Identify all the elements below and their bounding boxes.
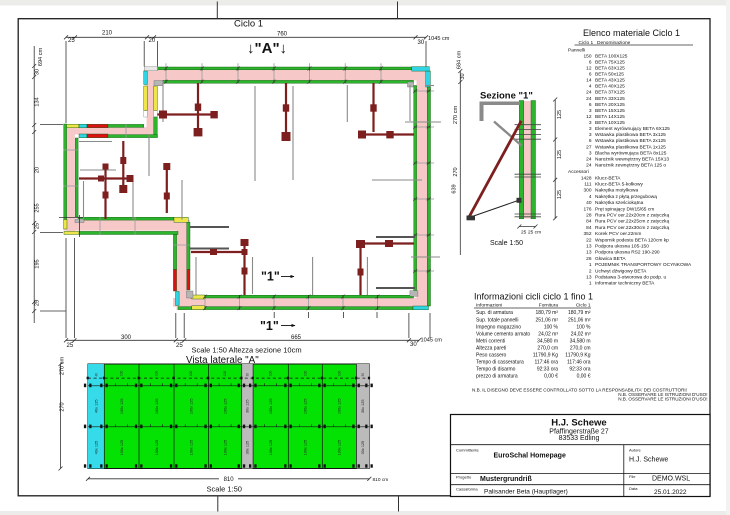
svg-text:Sup. di armatura: Sup. di armatura — [476, 310, 513, 316]
svg-text:100: 100 — [189, 370, 193, 376]
svg-text:352: 352 — [583, 231, 591, 237]
svg-text:Blacha wyrównująca BETA 8x125: Blacha wyrównująca BETA 8x125 — [595, 150, 667, 156]
svg-text:H.J. Schewe: H.J. Schewe — [551, 418, 606, 429]
svg-text:195: 195 — [35, 259, 41, 268]
svg-text:100x 125: 100x 125 — [190, 440, 194, 456]
svg-text:Podstawa 3-otworowa do podp. u: Podstawa 3-otworowa do podp. u — [595, 275, 667, 281]
svg-text:Scale 1:50: Scale 1:50 — [490, 240, 523, 247]
svg-text:180,79 m²: 180,79 m² — [535, 310, 558, 316]
svg-text:117:46 ora: 117:46 ora — [534, 360, 558, 366]
svg-text:Scale 1:50: Scale 1:50 — [207, 484, 242, 493]
svg-text:125: 125 — [557, 150, 563, 159]
svg-text:Podpora ukosna RS2 190-290: Podpora ukosna RS2 190-290 — [595, 250, 660, 256]
svg-text:6: 6 — [589, 138, 592, 144]
svg-text:180,79 m²: 180,79 m² — [568, 310, 591, 316]
svg-text:Głowica BETA: Głowica BETA — [595, 256, 626, 262]
svg-text:92:33 ora: 92:33 ora — [537, 367, 558, 373]
svg-text:125: 125 — [557, 110, 563, 119]
svg-text:Palisander Beta (Hauptlager): Palisander Beta (Hauptlager) — [484, 488, 568, 495]
svg-text:40: 40 — [586, 200, 592, 206]
svg-text:3: 3 — [589, 132, 592, 138]
svg-text:H.J. Schewe: H.J. Schewe — [629, 457, 668, 464]
svg-text:1: 1 — [589, 262, 592, 268]
svg-text:Podpora ukosna 105-150: Podpora ukosna 105-150 — [595, 244, 649, 250]
svg-text:639: 639 — [452, 184, 458, 193]
svg-text:Klucz-BETA: Klucz-BETA — [595, 175, 621, 181]
svg-text:270 cm: 270 cm — [60, 356, 66, 375]
svg-text:Rura PCV oer.22x25cm z zatyczk: Rura PCV oer.22x25cm z zatyczką — [595, 219, 669, 225]
svg-text:30: 30 — [418, 40, 425, 46]
svg-text:25: 25 — [35, 300, 41, 306]
svg-text:Rura PCV oer.22x20cm z zatyczk: Rura PCV oer.22x20cm z zatyczką — [595, 213, 669, 219]
svg-text:30x 125: 30x 125 — [361, 400, 365, 414]
svg-text:30: 30 — [35, 69, 41, 75]
svg-text:270,0 cm: 270,0 cm — [570, 346, 591, 352]
svg-text:270,0 cm: 270,0 cm — [537, 346, 558, 352]
svg-text:100x 125: 100x 125 — [269, 440, 273, 456]
svg-text:100: 100 — [269, 370, 273, 376]
svg-text:84: 84 — [586, 225, 592, 231]
svg-text:25: 25 — [67, 343, 74, 349]
svg-text:100 %: 100 % — [576, 324, 591, 330]
svg-text:1045 cm: 1045 cm — [421, 338, 443, 344]
svg-text:24,02 m³: 24,02 m³ — [571, 331, 591, 337]
svg-text:File: File — [629, 474, 636, 479]
svg-text:20: 20 — [149, 38, 156, 44]
svg-text:100x 125: 100x 125 — [269, 398, 273, 414]
svg-text:POJEMNIK TRANSPORTOWY OCYNKOWA: POJEMNIK TRANSPORTOWY OCYNKOWA — [595, 262, 692, 268]
svg-text:Nakrętka z płytą przegubową: Nakrętka z płytą przegubową — [595, 194, 657, 200]
svg-text:30x 125: 30x 125 — [361, 441, 365, 455]
svg-text:100x 125: 100x 125 — [120, 440, 124, 456]
svg-text:40: 40 — [94, 373, 98, 377]
svg-text:40x 125: 40x 125 — [95, 400, 99, 414]
svg-text:25: 25 — [68, 38, 75, 44]
svg-text:Elenco materiale Ciclo 1: Elenco materiale Ciclo 1 — [583, 28, 680, 38]
svg-text:Peso cassero: Peso cassero — [476, 353, 507, 359]
svg-text:100x 125: 100x 125 — [155, 398, 159, 414]
svg-text:Rura PCV oer.22x30cm z zatyczk: Rura PCV oer.22x30cm z zatyczką — [595, 225, 669, 231]
svg-text:Nakrętka motylkowa: Nakrętka motylkowa — [595, 188, 639, 194]
svg-text:13: 13 — [586, 250, 592, 256]
svg-text:255: 255 — [35, 203, 41, 212]
svg-text:84: 84 — [586, 219, 592, 225]
svg-text:12: 12 — [586, 114, 592, 120]
svg-text:BETA 50x125: BETA 50x125 — [595, 72, 624, 78]
svg-text:100x 125: 100x 125 — [223, 398, 227, 414]
svg-text:Tempo di disarmo: Tempo di disarmo — [476, 367, 516, 373]
svg-text:13: 13 — [586, 244, 592, 250]
svg-text:28: 28 — [586, 213, 592, 219]
svg-text:270: 270 — [453, 167, 459, 176]
svg-text:11790,9 Kg: 11790,9 Kg — [533, 353, 558, 359]
svg-text:Uchwyt dźwigowy BETA: Uchwyt dźwigowy BETA — [595, 268, 647, 274]
svg-text:100x 125: 100x 125 — [190, 398, 194, 414]
svg-text:25 cm: 25 cm — [528, 230, 541, 236]
svg-text:Nakrętka sześciokątna: Nakrętka sześciokątna — [595, 200, 644, 206]
svg-text:100: 100 — [337, 370, 341, 376]
svg-text:BETA 10X125: BETA 10X125 — [595, 120, 625, 126]
svg-text:BETA 40X125: BETA 40X125 — [595, 84, 625, 90]
svg-text:Impegno magazzino: Impegno magazzino — [476, 324, 521, 330]
svg-text:270: 270 — [60, 402, 66, 411]
svg-text:12: 12 — [586, 65, 592, 71]
svg-text:6: 6 — [589, 102, 592, 108]
svg-text:↓"A"↓: ↓"A"↓ — [247, 40, 287, 57]
svg-text:40x 125: 40x 125 — [95, 441, 99, 455]
svg-text:BETA 20X125: BETA 20X125 — [595, 102, 625, 108]
svg-text:Klucz-BETA 5-kołkowy: Klucz-BETA 5-kołkowy — [595, 182, 643, 188]
svg-text:30x 125: 30x 125 — [246, 441, 250, 455]
svg-text:Wstawka plastikowa BETA 2x125: Wstawka plastikowa BETA 2x125 — [595, 138, 666, 144]
svg-text:Pręt spinający DW15/65 cm: Pręt spinający DW15/65 cm — [595, 206, 654, 212]
svg-text:Autore: Autore — [629, 448, 642, 453]
svg-text:30: 30 — [460, 73, 466, 79]
svg-text:Cassaforma: Cassaforma — [456, 486, 478, 491]
svg-text:Mustergrundriß: Mustergrundriß — [480, 476, 532, 483]
svg-text:111: 111 — [584, 182, 592, 188]
svg-text:3: 3 — [589, 126, 592, 132]
svg-text:Data: Data — [629, 486, 638, 491]
svg-text:Sezione "1": Sezione "1" — [480, 90, 533, 101]
svg-text:694 cm: 694 cm — [38, 47, 44, 66]
svg-text:4: 4 — [589, 194, 592, 200]
svg-text:134: 134 — [35, 97, 41, 106]
svg-text:EuroSchal Homepage: EuroSchal Homepage — [494, 452, 566, 459]
svg-text:270 cm: 270 cm — [453, 105, 459, 124]
svg-text:N.B. OSSERVARE LE ISTRUZIONI D: N.B. OSSERVARE LE ISTRUZIONI D'USO! — [618, 397, 707, 402]
svg-text:Sup. totale pannelli: Sup. totale pannelli — [476, 317, 519, 323]
svg-text:Scale 1:50 Altezza sezione 10: Scale 1:50 Altezza sezione 10cm — [192, 346, 302, 355]
svg-text:27: 27 — [586, 144, 592, 150]
svg-text:Ciclo 1: Ciclo 1 — [234, 19, 263, 30]
svg-text:BETA 43X125: BETA 43X125 — [595, 78, 625, 84]
svg-text:22: 22 — [586, 237, 592, 243]
svg-text:Accessori: Accessori — [568, 169, 589, 175]
svg-text:Tempo di casseratura: Tempo di casseratura — [476, 360, 524, 366]
svg-text:210: 210 — [102, 31, 113, 37]
svg-text:24,02 m³: 24,02 m³ — [538, 331, 558, 337]
svg-text:Wstawka plastikowa BETA 1x125: Wstawka plastikowa BETA 1x125 — [595, 144, 666, 150]
svg-text:100x 125: 100x 125 — [223, 440, 227, 456]
svg-text:176: 176 — [583, 206, 591, 212]
svg-text:810 cm: 810 cm — [373, 477, 389, 483]
svg-text:30: 30 — [361, 373, 365, 377]
svg-text:24: 24 — [586, 156, 592, 162]
svg-text:prezzo di armatura: prezzo di armatura — [476, 374, 518, 380]
svg-text:11790,9 Kg: 11790,9 Kg — [565, 353, 590, 359]
svg-text:BETA 100X125: BETA 100X125 — [595, 53, 628, 59]
svg-text:100x 125: 100x 125 — [304, 398, 308, 414]
svg-text:24: 24 — [586, 96, 592, 102]
svg-text:2: 2 — [589, 268, 592, 274]
svg-text:92:33 ora: 92:33 ora — [569, 367, 590, 373]
svg-text:100: 100 — [120, 370, 124, 376]
svg-text:30: 30 — [246, 373, 250, 377]
svg-text:BETA 33X125: BETA 33X125 — [595, 96, 625, 102]
svg-text:1: 1 — [589, 281, 592, 287]
svg-text:1428: 1428 — [581, 175, 592, 181]
svg-text:25.01.2022: 25.01.2022 — [654, 489, 687, 496]
svg-text:100x 125: 100x 125 — [120, 398, 124, 414]
svg-text:Committente: Committente — [456, 448, 479, 453]
svg-text:100 %: 100 % — [544, 324, 559, 330]
svg-text:1045 cm: 1045 cm — [428, 36, 450, 42]
svg-text:100: 100 — [303, 370, 307, 376]
svg-text:Narożnik wewnętrzny BETA 15X13: Narożnik wewnętrzny BETA 15X13 — [595, 156, 669, 162]
svg-text:BETA 75X125: BETA 75X125 — [595, 59, 625, 65]
svg-text:Metri correnti: Metri correnti — [476, 338, 505, 344]
svg-text:665: 665 — [291, 335, 302, 341]
svg-text:6: 6 — [589, 59, 592, 65]
svg-text:3: 3 — [589, 108, 592, 114]
svg-text:26: 26 — [586, 256, 592, 262]
svg-text:BETA 63X125: BETA 63X125 — [595, 65, 625, 71]
svg-text:"1": "1" — [260, 319, 279, 333]
svg-text:0,00 €: 0,00 € — [544, 374, 558, 380]
svg-text:BETA 37X125: BETA 37X125 — [595, 90, 625, 96]
svg-text:251,06 m²: 251,06 m² — [568, 317, 591, 323]
svg-text:760: 760 — [277, 32, 288, 38]
svg-text:0,00 €: 0,00 € — [577, 374, 591, 380]
svg-text:Wstawka plastikowa BETA 3x125: Wstawka plastikowa BETA 3x125 — [595, 132, 666, 138]
svg-text:100x 125: 100x 125 — [155, 440, 159, 456]
svg-text:BETA 14X125: BETA 14X125 — [595, 114, 625, 120]
svg-text:3: 3 — [589, 150, 592, 156]
svg-text:300: 300 — [583, 188, 591, 194]
svg-text:24: 24 — [586, 90, 592, 96]
svg-text:Volume cemento armato: Volume cemento armato — [476, 331, 530, 337]
svg-text:Element wyrównujący BETA 6X125: Element wyrównujący BETA 6X125 — [595, 126, 670, 132]
svg-text:4: 4 — [589, 84, 592, 90]
svg-text:125: 125 — [557, 190, 563, 199]
svg-text:24: 24 — [586, 163, 592, 169]
svg-text:"1": "1" — [261, 270, 280, 284]
svg-text:100x 125: 100x 125 — [304, 440, 308, 456]
svg-text:100: 100 — [223, 370, 227, 376]
svg-text:20: 20 — [35, 167, 41, 173]
svg-text:83533 Edling: 83533 Edling — [559, 435, 600, 442]
svg-text:25: 25 — [521, 230, 527, 236]
svg-text:Informator techniczny BETA: Informator techniczny BETA — [595, 281, 655, 287]
svg-text:Wspornik podestu BETA 120cm kp: Wspornik podestu BETA 120cm kp — [595, 237, 669, 243]
svg-text:25: 25 — [35, 223, 41, 229]
svg-text:25: 25 — [176, 343, 183, 349]
svg-text:Altezza pareti: Altezza pareti — [476, 346, 506, 352]
svg-text:BETA 15X125: BETA 15X125 — [595, 108, 625, 114]
svg-text:100x 125: 100x 125 — [338, 440, 342, 456]
svg-text:34,580 m: 34,580 m — [537, 338, 558, 344]
svg-text:30x 125: 30x 125 — [246, 400, 250, 414]
svg-text:13: 13 — [586, 275, 592, 281]
svg-text:Progetto: Progetto — [456, 475, 472, 480]
svg-text:34,580 m: 34,580 m — [570, 338, 591, 344]
svg-text:Pannelli: Pannelli — [568, 48, 585, 54]
svg-text:251,06 m²: 251,06 m² — [535, 317, 558, 323]
svg-text:100: 100 — [155, 370, 159, 376]
svg-text:684 cm: 684 cm — [457, 50, 463, 69]
svg-text:300: 300 — [121, 335, 132, 341]
svg-text:117:46 ora: 117:46 ora — [567, 360, 591, 366]
svg-text:Korek PCV oer.22mm: Korek PCV oer.22mm — [595, 231, 641, 237]
svg-text:100x 125: 100x 125 — [338, 398, 342, 414]
svg-text:6: 6 — [589, 72, 592, 78]
svg-text:810: 810 — [224, 477, 235, 483]
svg-text:3: 3 — [589, 120, 592, 126]
svg-text:150: 150 — [583, 53, 591, 59]
svg-text:DEMO.WSL: DEMO.WSL — [652, 475, 690, 482]
svg-text:Narożnik zewnętrzny BETA 125 o: Narożnik zewnętrzny BETA 125 o — [595, 163, 666, 169]
svg-text:30: 30 — [410, 342, 417, 348]
svg-text:Informazioni cicli ciclo 1 fi: Informazioni cicli ciclo 1 fino 1 — [474, 291, 593, 301]
svg-text:14: 14 — [586, 78, 592, 84]
